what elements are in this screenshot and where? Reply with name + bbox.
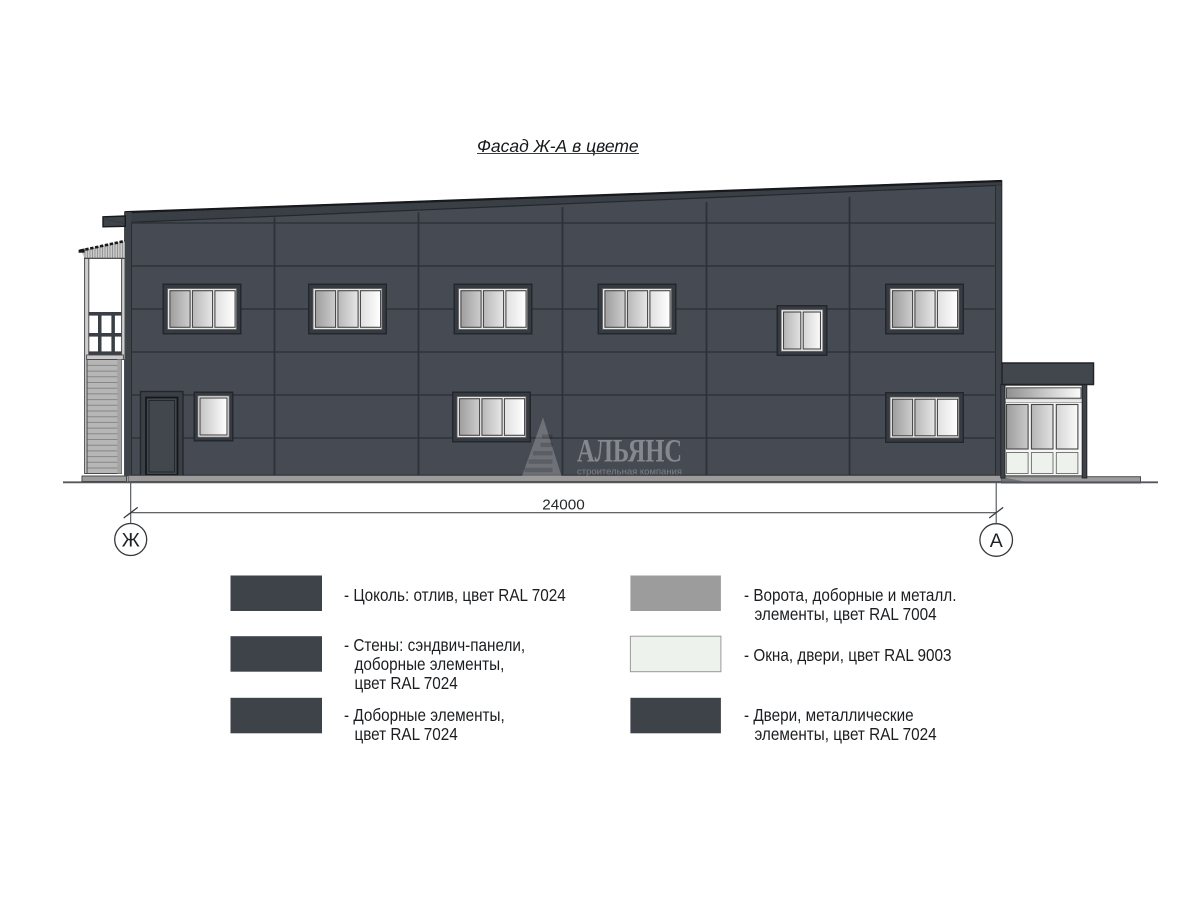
svg-text:Ж: Ж <box>122 530 140 552</box>
svg-text:строительная компания: строительная компания <box>577 467 682 478</box>
svg-text:А: А <box>990 530 1003 552</box>
svg-text:АЛЬЯНС: АЛЬЯНС <box>577 434 682 470</box>
svg-text:24000: 24000 <box>542 498 585 514</box>
